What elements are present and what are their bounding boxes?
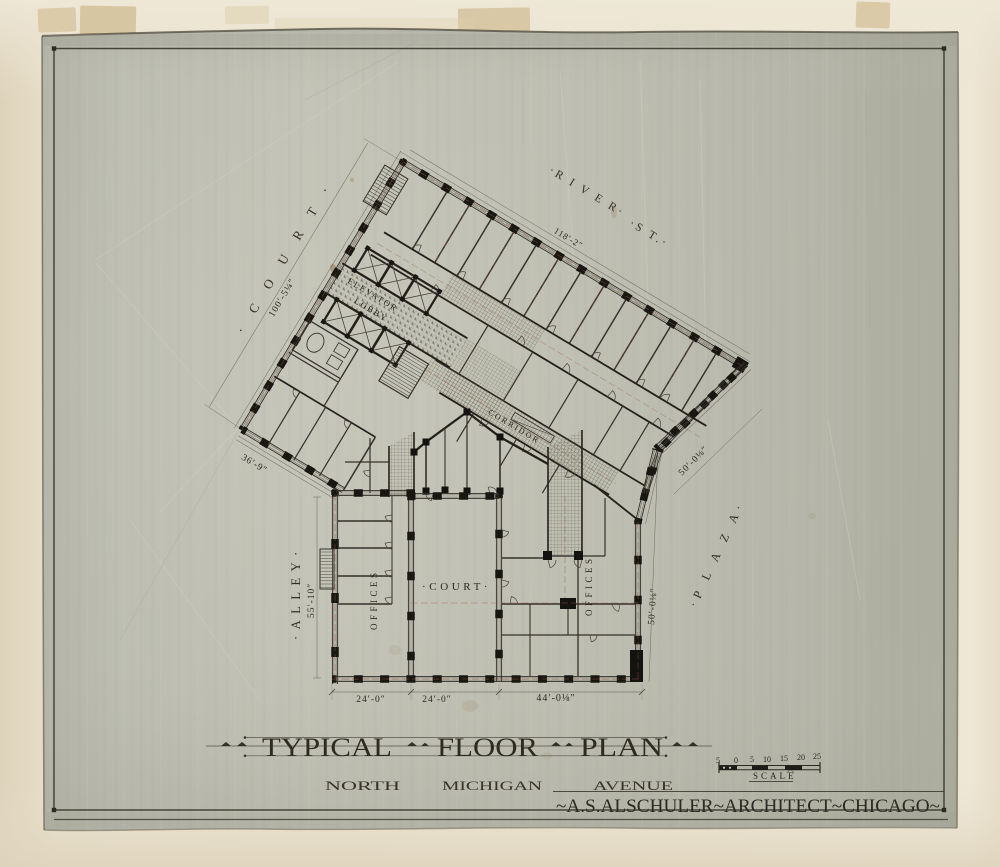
- svg-text:5: 5: [716, 756, 720, 765]
- svg-text:FLOOR: FLOOR: [437, 733, 539, 762]
- svg-text:·ALLEY·: ·ALLEY·: [289, 545, 303, 640]
- svg-text:·CΟURT·: ·CΟURT·: [422, 581, 491, 593]
- svg-text:PLAN: PLAN: [580, 733, 663, 762]
- svg-text:15: 15: [780, 754, 788, 763]
- svg-text:24′-0″: 24′-0″: [356, 695, 385, 705]
- svg-text:0: 0: [734, 756, 738, 765]
- svg-text:NORTH: NORTH: [325, 778, 400, 793]
- svg-text:TYPICAL: TYPICAL: [262, 733, 392, 762]
- svg-text:ΟFFICES: ΟFFICES: [584, 555, 594, 616]
- svg-text:AVENUE: AVENUE: [593, 778, 673, 793]
- svg-text:55′-10″: 55′-10″: [307, 583, 317, 618]
- svg-text:MICHIGAN: MICHIGAN: [442, 778, 543, 793]
- svg-text:~A.S.ALSCHULER~ARCHITECT~CHICA: ~A.S.ALSCHULER~ARCHITECT~CHICAGO~: [556, 796, 940, 817]
- svg-text:ΟFFICES: ΟFFICES: [369, 569, 379, 630]
- svg-text:20: 20: [797, 753, 805, 762]
- svg-text:25: 25: [813, 752, 821, 761]
- svg-text:5: 5: [750, 755, 754, 764]
- svg-text:24′-0″: 24′-0″: [422, 695, 451, 705]
- svg-text:SCALE: SCALE: [753, 771, 797, 781]
- svg-text:44′-0⅛″: 44′-0⅛″: [536, 693, 575, 704]
- svg-text:10: 10: [763, 755, 771, 764]
